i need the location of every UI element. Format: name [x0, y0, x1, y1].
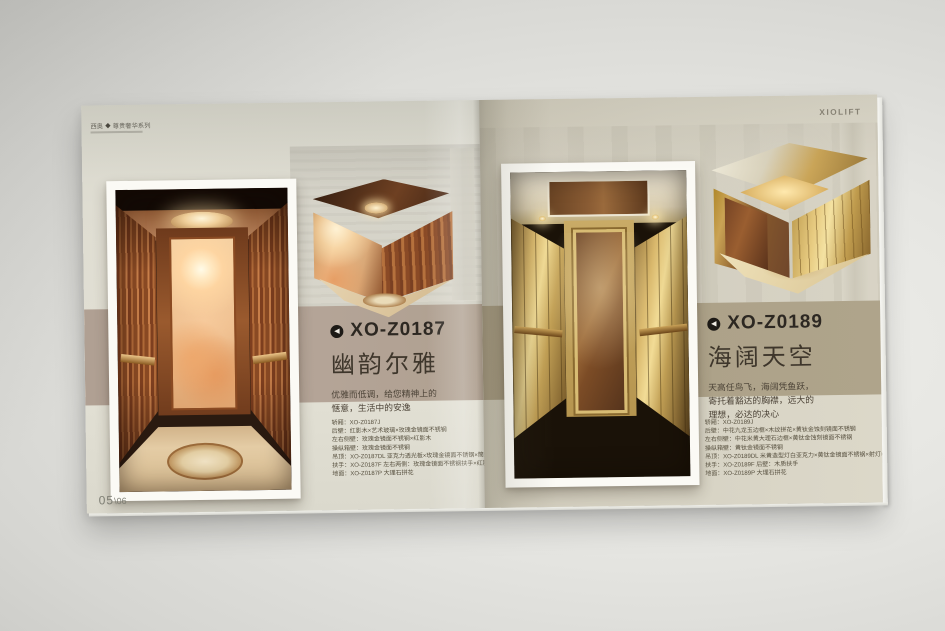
series-header-label: 尊贵奢华系列 [113, 121, 151, 131]
series-tagline [91, 131, 143, 134]
photo-vignette [115, 188, 291, 492]
cutaway-floor-medallion [363, 294, 406, 308]
studio-backdrop: 西奥 ◆ 尊贵奢华系列 [0, 0, 945, 631]
brand-logo: XIOLIFT [819, 108, 861, 118]
left-elevator-photo [115, 188, 291, 492]
right-elevator-photo-frame [501, 161, 700, 488]
catalog-spread: 西奥 ◆ 尊贵奢华系列 [81, 94, 883, 513]
page-number-sub: \06 [114, 496, 127, 506]
series-logo-icon: ◆ [105, 122, 110, 130]
right-page: XIOLIFT [479, 94, 883, 508]
series-header: 西奥 ◆ 尊贵奢华系列 [90, 121, 150, 131]
left-elevator-cutaway [298, 169, 465, 318]
left-elevator-photo-frame [106, 179, 300, 502]
photo-vignette [510, 170, 690, 478]
series-header-prefix: 西奥 [90, 121, 103, 130]
pointer-left-icon: ◀ [707, 317, 720, 330]
pointer-left-icon: ◀ [330, 324, 343, 337]
model-row: ◀ XO-Z0189 [707, 311, 839, 335]
right-product-title-block: ◀ XO-Z0189 海阔天空 天高任鸟飞，海阔凭鱼跃， 寄托着豁达的胸襟，远大… [707, 311, 841, 433]
product-name: 幽韵尔雅 [331, 343, 463, 380]
product-model: XO-Z0189 [727, 311, 823, 334]
left-product-title-block: ◀ XO-Z0187 幽韵尔雅 优雅而低调，给您精神上的 惬意，生活中的安逸 [330, 318, 463, 423]
page-number: 05\06 [99, 491, 127, 509]
right-elevator-photo [510, 170, 690, 478]
model-row: ◀ XO-Z0187 [330, 318, 462, 342]
description-line: 惬意，生活中的安逸 [331, 401, 463, 416]
right-elevator-cutaway [701, 135, 880, 294]
left-spec-list: 轿厢：XO-Z0187J 后壁：红影木×艺术玻璃×玫瑰金镜面不锈钢 左右侧壁：玫… [332, 414, 485, 479]
product-model: XO-Z0187 [350, 319, 446, 342]
left-page: 西奥 ◆ 尊贵奢华系列 [81, 100, 485, 514]
page-number-main: 05 [99, 493, 115, 507]
right-spec-list: 轿厢：XO-Z0189J 后壁：中花九龙玉边框×木纹拼花×黄钛金蚀刻镜面不锈钢 … [705, 413, 883, 478]
product-description: 优雅而低调，给您精神上的 惬意，生活中的安逸 [331, 387, 463, 416]
cutaway-lamp [365, 203, 388, 214]
product-name: 海阔天空 [707, 336, 839, 373]
